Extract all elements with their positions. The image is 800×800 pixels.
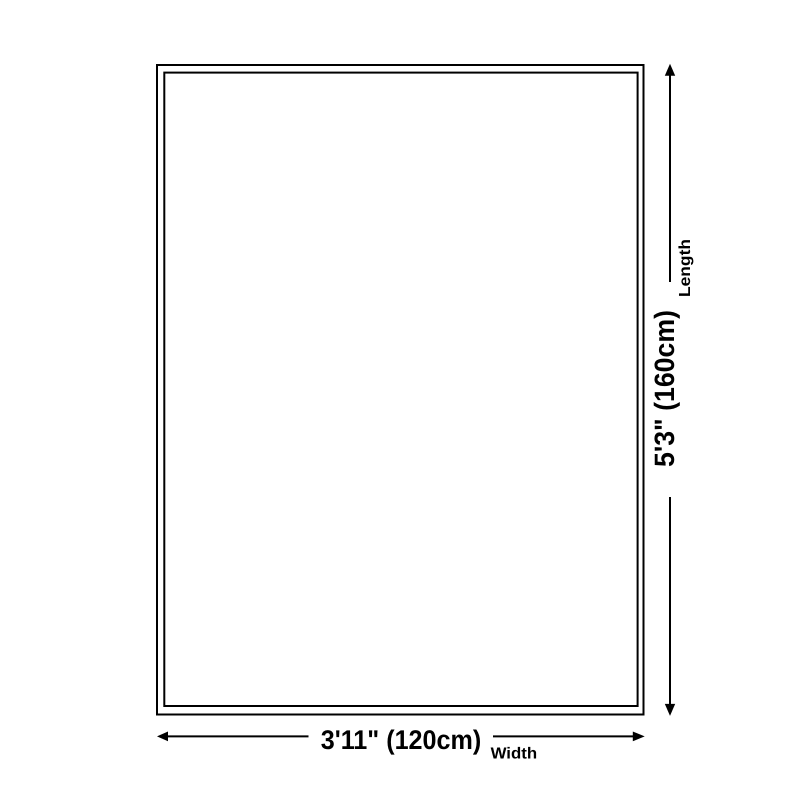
svg-text:Width: Width <box>491 746 537 763</box>
svg-text:Length: Length <box>677 239 694 297</box>
svg-text:3'11" (120cm): 3'11" (120cm) <box>321 725 482 755</box>
svg-text:5'3" (160cm): 5'3" (160cm) <box>649 310 680 467</box>
